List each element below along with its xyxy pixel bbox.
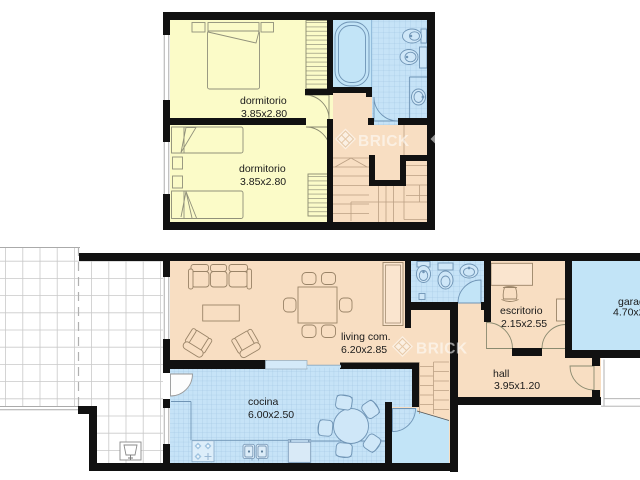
svg-text:BRICK: BRICK: [416, 341, 468, 358]
svg-text:escritorio: escritorio: [500, 305, 543, 317]
svg-text:6.20x2.85: 6.20x2.85: [341, 344, 387, 356]
svg-text:cocina: cocina: [248, 396, 279, 408]
svg-text:6.00x2.50: 6.00x2.50: [248, 409, 294, 421]
svg-text:2.15x2.55: 2.15x2.55: [501, 318, 547, 330]
svg-text:dormitorio: dormitorio: [240, 95, 287, 107]
svg-text:3.85x2.80: 3.85x2.80: [241, 108, 287, 120]
svg-text:living com.: living com.: [341, 331, 391, 343]
svg-text:3.85x2.80: 3.85x2.80: [240, 176, 286, 188]
svg-text:4.70x2.60: 4.70x2.60: [613, 307, 640, 319]
svg-text:hall: hall: [493, 368, 509, 380]
svg-text:3.95x1.20: 3.95x1.20: [494, 380, 540, 392]
svg-text:dormitorio: dormitorio: [239, 163, 286, 175]
svg-text:BRICK: BRICK: [358, 133, 410, 150]
